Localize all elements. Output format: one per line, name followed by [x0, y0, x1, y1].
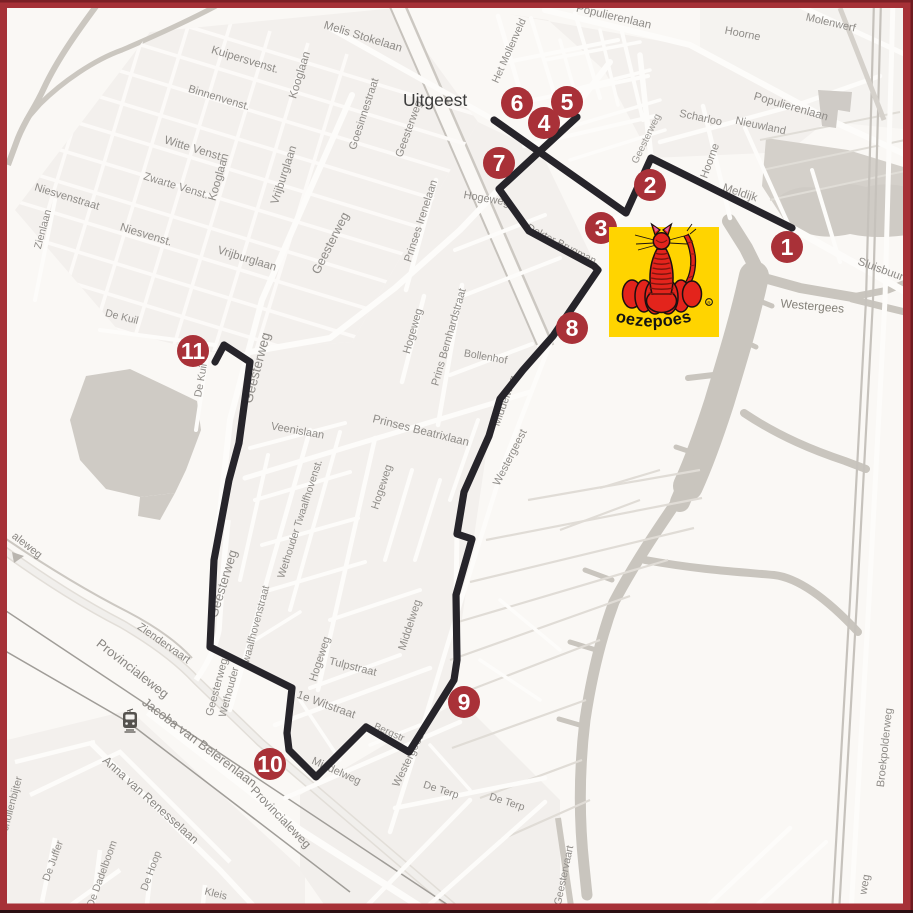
svg-text:4: 4	[538, 110, 551, 136]
svg-text:1: 1	[781, 234, 794, 260]
svg-text:Uitgeest: Uitgeest	[403, 90, 467, 110]
svg-text:5: 5	[561, 89, 574, 115]
svg-text:6: 6	[511, 90, 524, 116]
svg-text:11: 11	[181, 338, 206, 364]
svg-text:3: 3	[595, 215, 608, 241]
svg-text:8: 8	[566, 315, 579, 341]
svg-text:7: 7	[493, 150, 506, 176]
svg-text:2: 2	[644, 172, 657, 198]
svg-text:9: 9	[458, 689, 471, 715]
svg-text:10: 10	[257, 751, 283, 777]
